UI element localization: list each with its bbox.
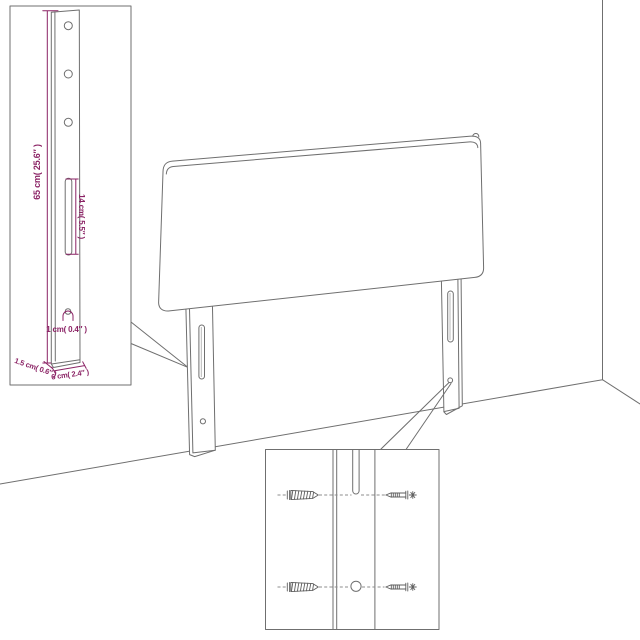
dim-label-slot-length: 14 cm( 5.5″ )	[77, 194, 86, 239]
callout-line	[131, 322, 188, 368]
product-diagram: 65 cm( 25.6″ ) 14 cm( 5.5″ ) 1 cm( 0.4″ …	[0, 0, 640, 640]
headboard-panel	[159, 133, 484, 311]
dim-label-leg-height: 65 cm( 25.6″ )	[32, 144, 42, 200]
diagram-canvas: 65 cm( 25.6″ ) 14 cm( 5.5″ ) 1 cm( 0.4″ …	[0, 0, 640, 640]
headboard-left-leg	[186, 298, 216, 457]
panel-face	[159, 136, 484, 311]
callout-line	[131, 344, 188, 368]
dim-label-hole-diameter: 1 cm( 0.4″ )	[46, 325, 87, 334]
leg-dimension-inset: 65 cm( 25.6″ ) 14 cm( 5.5″ ) 1 cm( 0.4″ …	[10, 6, 131, 385]
floor-line-right	[603, 380, 640, 404]
wood-screw-top	[287, 490, 318, 499]
wood-screw-bottom	[287, 582, 318, 591]
inset-callout-lines	[131, 322, 188, 368]
screw-detail-inset	[266, 450, 440, 630]
callout-line	[406, 384, 451, 450]
